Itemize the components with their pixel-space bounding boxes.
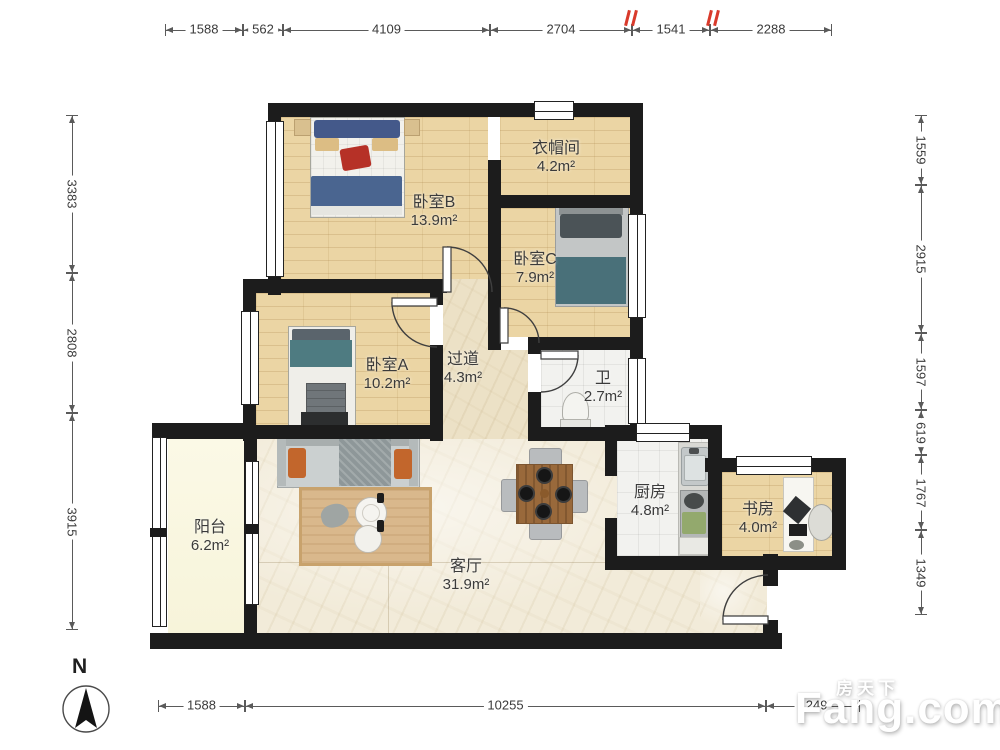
dim-part [918, 522, 924, 529]
dim-part [918, 456, 924, 463]
dim-part [69, 405, 75, 412]
dimension-value: 4109 [368, 23, 405, 37]
dim-part [284, 27, 291, 33]
door-arc-entry [723, 575, 768, 620]
dim-part [702, 27, 709, 33]
dimension-value: 1349 [914, 554, 928, 591]
dimension-top-bottom: 1588 [158, 699, 245, 713]
room-name-cloakroom: 衣帽间 [501, 140, 611, 158]
dim-part [767, 703, 774, 709]
dim-part [918, 116, 924, 123]
door-leaf-bedroom-c [500, 308, 508, 343]
room-label-bedroom-c: 卧室C7.9m² [480, 251, 590, 286]
room-area-bedroom-b: 13.9m² [379, 212, 489, 229]
door-leaf-bathroom [541, 351, 578, 359]
north-label: N [72, 655, 87, 679]
dimension-top-bottom: 10255 [245, 699, 766, 713]
dimension-side: 2915 [914, 185, 928, 333]
dimension-value: 1588 [186, 23, 223, 37]
room-label-cloakroom: 衣帽间4.2m² [501, 140, 611, 175]
dim-part [831, 24, 832, 36]
door-arc-bedroom-c [504, 308, 539, 343]
dimension-side: 2808 [65, 273, 79, 413]
dim-part [918, 334, 924, 341]
dim-part [711, 27, 718, 33]
room-name-hallway: 过道 [408, 351, 518, 369]
dimension-value: 2288 [753, 23, 790, 37]
room-label-balcony: 阳台6.2m² [155, 519, 265, 554]
dimension-value: 619 [914, 418, 928, 448]
dimension-side: 1559 [914, 115, 928, 185]
dim-part [159, 703, 166, 709]
dimension-side: 1597 [914, 333, 928, 410]
dim-part [69, 622, 75, 629]
room-label-study: 书房4.0m² [703, 501, 813, 536]
dimension-top-bottom: 1541 [632, 23, 710, 37]
dim-part [69, 116, 75, 123]
dim-part [491, 27, 498, 33]
dim-part [918, 607, 924, 614]
door-leaf-bedroom-b [443, 247, 451, 292]
dimension-side: 1349 [914, 530, 928, 615]
room-area-balcony: 6.2m² [155, 537, 265, 554]
room-label-hallway: 过道4.3m² [408, 351, 518, 386]
room-name-bedroom-c: 卧室C [480, 251, 590, 269]
dim-part [69, 265, 75, 272]
room-area-living-room: 31.9m² [411, 576, 521, 593]
dimension-top-bottom: 2288 [710, 23, 832, 37]
dim-part [69, 274, 75, 281]
dim-part [918, 531, 924, 538]
room-area-bedroom-c: 7.9m² [480, 269, 590, 286]
dimension-value: 1541 [653, 23, 690, 37]
dim-part [758, 703, 765, 709]
dimension-value: 1559 [914, 132, 928, 169]
dimension-value: 1767 [914, 474, 928, 511]
north-arrow-icon [60, 683, 112, 735]
room-name-kitchen: 厨房 [595, 484, 705, 502]
dimension-value: 10255 [483, 699, 527, 713]
dim-part [69, 414, 75, 421]
dim-part [482, 27, 489, 33]
dim-part [235, 27, 242, 33]
dim-part [246, 703, 253, 709]
dim-part [918, 402, 924, 409]
dimension-side: 3383 [65, 115, 79, 273]
dim-part [624, 27, 631, 33]
dim-part [237, 703, 244, 709]
room-area-hallway: 4.3m² [408, 369, 518, 386]
room-area-cloakroom: 4.2m² [501, 158, 611, 175]
dim-part [918, 186, 924, 193]
door-arc-bedroom-a [392, 302, 437, 347]
room-name-study: 书房 [703, 501, 813, 519]
dimension-top-bottom: 4109 [283, 23, 490, 37]
dim-part [824, 27, 831, 33]
dimension-side: 619 [914, 410, 928, 455]
door-leaf-bedroom-a [392, 298, 437, 306]
dimension-value: 2704 [543, 23, 580, 37]
room-label-bathroom: 卫2.7m² [548, 370, 658, 405]
dimension-side: 3915 [65, 413, 79, 630]
dimension-value: 1588 [183, 699, 220, 713]
room-name-bathroom: 卫 [548, 370, 658, 388]
dimension-top-bottom: 1588 [165, 23, 243, 37]
dim-part [915, 614, 927, 615]
dimension-value: 3383 [65, 176, 79, 213]
room-name-living-room: 客厅 [411, 558, 521, 576]
room-area-study: 4.0m² [703, 519, 813, 536]
room-name-bedroom-b: 卧室B [379, 194, 489, 212]
room-area-kitchen: 4.8m² [595, 502, 705, 519]
dim-part [66, 629, 78, 630]
dim-part [918, 177, 924, 184]
floor-plan: N 房天下 Fang.com 卧室B13.9m²衣帽间4.2m²卧室C7.9m²… [0, 0, 1000, 750]
dimension-side: 1767 [914, 455, 928, 530]
dimension-value: 562 [248, 23, 278, 37]
room-area-bathroom: 2.7m² [548, 388, 658, 405]
room-label-living-room: 客厅31.9m² [411, 558, 521, 593]
dim-part [918, 447, 924, 454]
fang-watermark: Fang.com [795, 684, 1000, 734]
dimension-value: 1597 [914, 353, 928, 390]
dim-part [633, 27, 640, 33]
dim-part [166, 27, 173, 33]
room-label-kitchen: 厨房4.8m² [595, 484, 705, 519]
dim-part [918, 325, 924, 332]
dimension-value: 2915 [914, 241, 928, 278]
dimension-value: 3915 [65, 503, 79, 540]
room-name-balcony: 阳台 [155, 519, 265, 537]
dimension-value: 2808 [65, 325, 79, 362]
door-leaf-entry [723, 616, 768, 624]
dimension-top-bottom: 2704 [490, 23, 632, 37]
dimension-top-bottom: 562 [243, 23, 283, 37]
room-label-bedroom-b: 卧室B13.9m² [379, 194, 489, 229]
